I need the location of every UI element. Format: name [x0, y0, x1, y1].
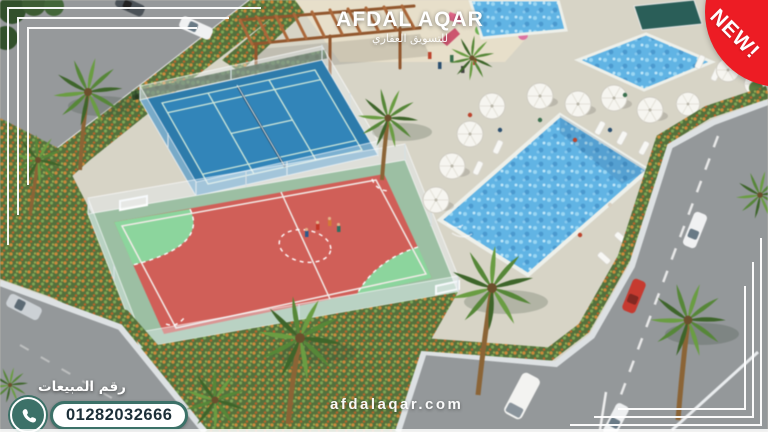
phone-button[interactable]: 01282032666 [10, 397, 188, 432]
sales-number-label: رقم المبيعات [12, 379, 152, 395]
phone-handset-glyph [20, 407, 37, 424]
aerial-render [0, 0, 768, 432]
flyer: AFDAL AQAR للتسويق العقاري NEW! رقم المب… [0, 0, 768, 432]
pavilion [634, 0, 702, 30]
phone-number[interactable]: 01282032666 [50, 401, 188, 430]
phone-icon[interactable] [10, 397, 46, 432]
brand-name: AFDAL AQAR [330, 9, 490, 31]
brand-logo: AFDAL AQAR للتسويق العقاري [330, 9, 490, 45]
website-watermark: afdalaqar.com [330, 396, 463, 413]
brand-tagline: للتسويق العقاري [330, 32, 490, 45]
